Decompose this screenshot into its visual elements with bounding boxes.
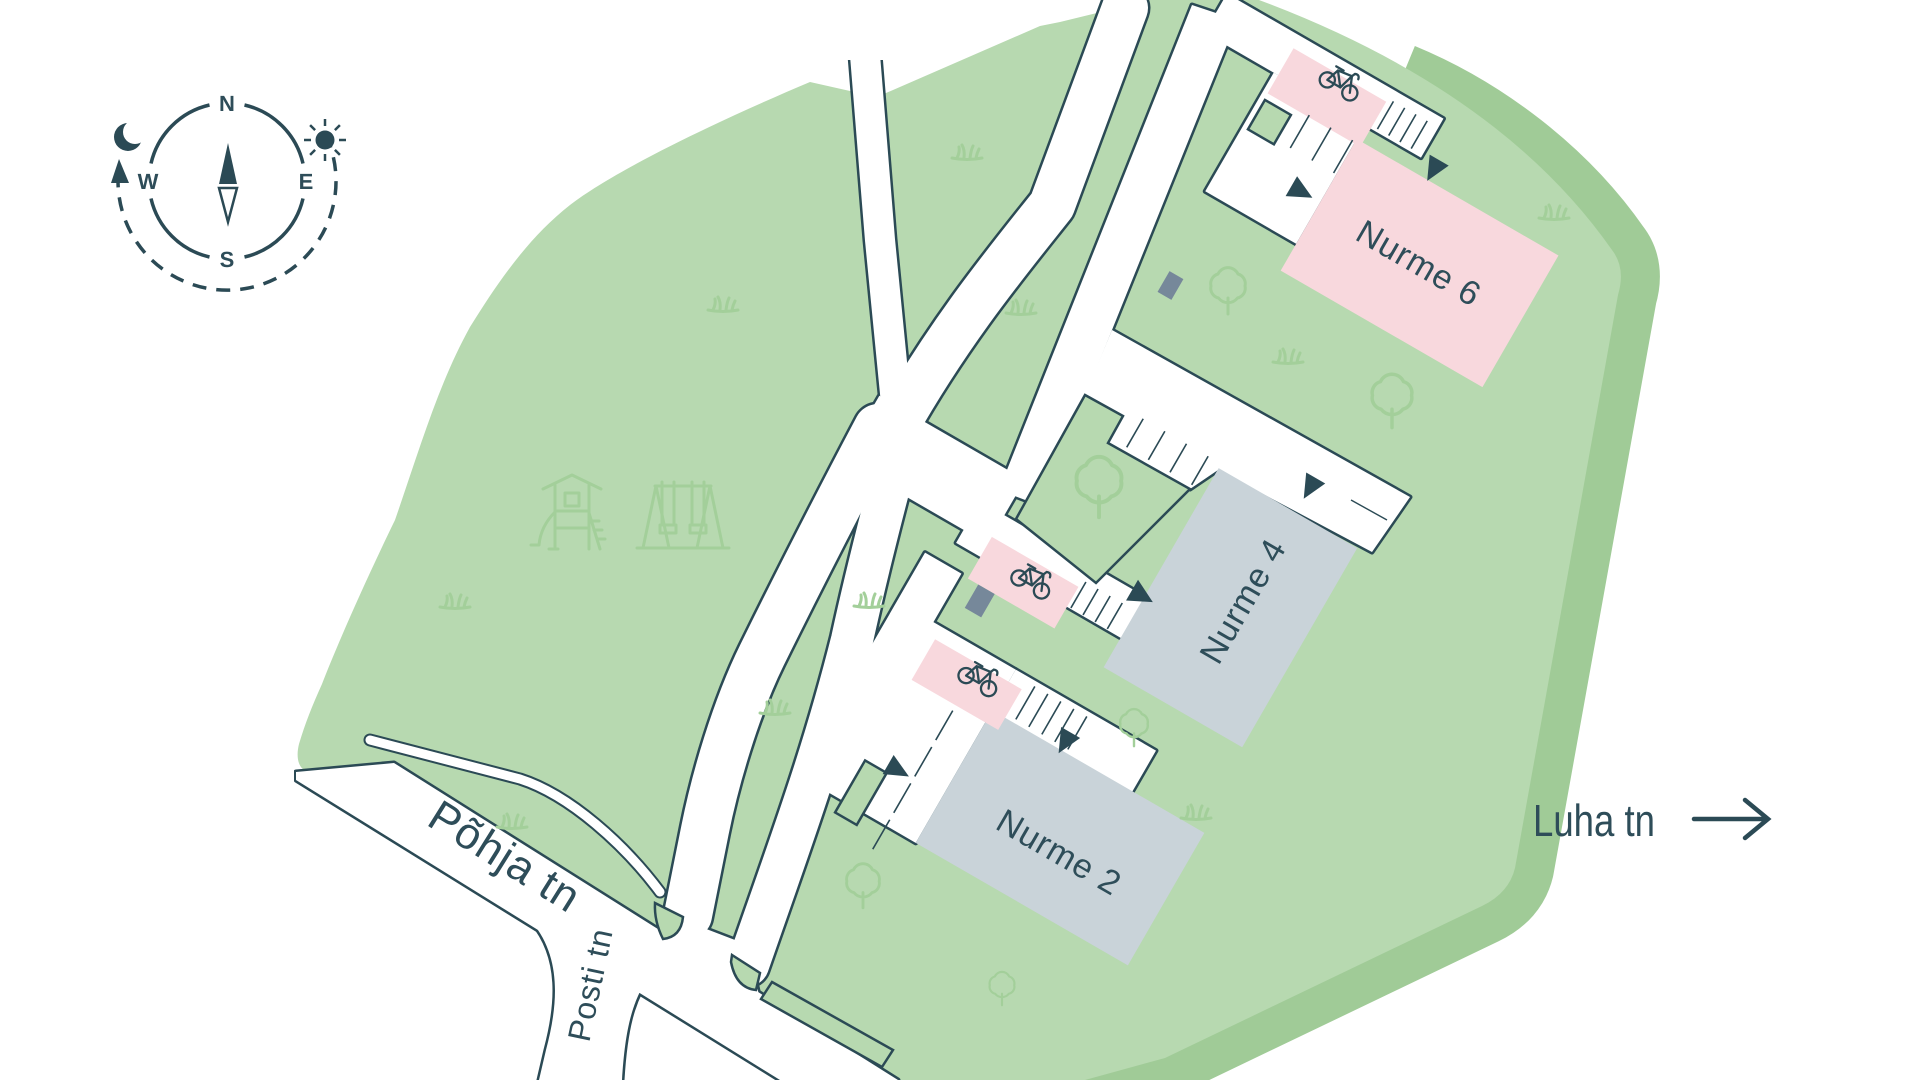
svg-text:Luha tn: Luha tn [1533,795,1655,846]
svg-text:S: S [220,247,235,272]
svg-text:E: E [299,169,314,194]
svg-text:W: W [138,169,159,194]
svg-text:N: N [219,91,235,116]
